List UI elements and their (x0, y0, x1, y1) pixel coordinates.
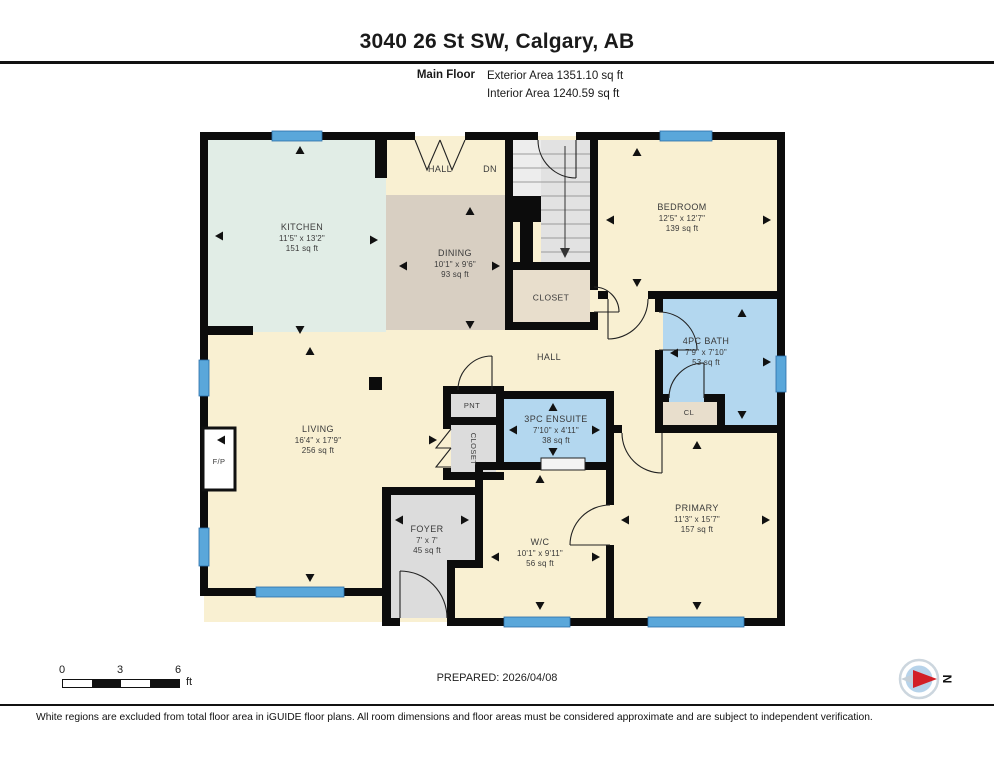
room-label-ensuite: 3PC ENSUITE7'10" x 4'11"38 sq ft (524, 414, 587, 446)
room-label-bath: 4PC BATH7'9" x 7'10"53 sq ft (683, 336, 730, 368)
floorplan-drawing (0, 0, 994, 768)
wall-post (369, 377, 382, 390)
room-label-kitchen: KITCHEN11'5" x 13'2"151 sq ft (279, 222, 325, 254)
room-label-dining: DINING10'1" x 9'6"93 sq ft (434, 248, 476, 280)
room-label-hall-mid: HALL (537, 352, 561, 364)
room-label-closet-living: CLOSET (468, 433, 478, 465)
room-label-living: LIVING16'4" x 17'9"256 sq ft (295, 424, 341, 456)
room-label-primary: PRIMARY11'3" x 15'7"157 sq ft (674, 503, 720, 535)
room-label-hall-top: HALL (428, 164, 452, 176)
compass-icon: N (896, 657, 960, 701)
room-label-pantry: PNT (464, 401, 480, 411)
room-label-wc: W/C10'1" x 9'11"56 sq ft (517, 537, 563, 569)
stairs-dn-label: DN (483, 164, 497, 176)
disclaimer-text: White regions are excluded from total fl… (36, 712, 966, 723)
prepared-date: PREPARED: 2026/04/08 (0, 672, 994, 684)
ensuite-pocket-door (541, 458, 585, 470)
floorplan-page: 3040 26 St SW, Calgary, AB Main Floor Ex… (0, 0, 994, 768)
compass-n-label: N (940, 675, 954, 684)
room-label-foyer: FOYER7' x 7'45 sq ft (410, 524, 443, 556)
room-label-bedroom: BEDROOM12'5" x 12'7"139 sq ft (657, 202, 706, 234)
room-label-cl: CL (684, 408, 694, 418)
entry-area (391, 560, 447, 618)
fireplace-label: F/P (213, 457, 226, 467)
footer-divider (0, 704, 994, 706)
room-label-closet-stairs: CLOSET (533, 292, 569, 303)
